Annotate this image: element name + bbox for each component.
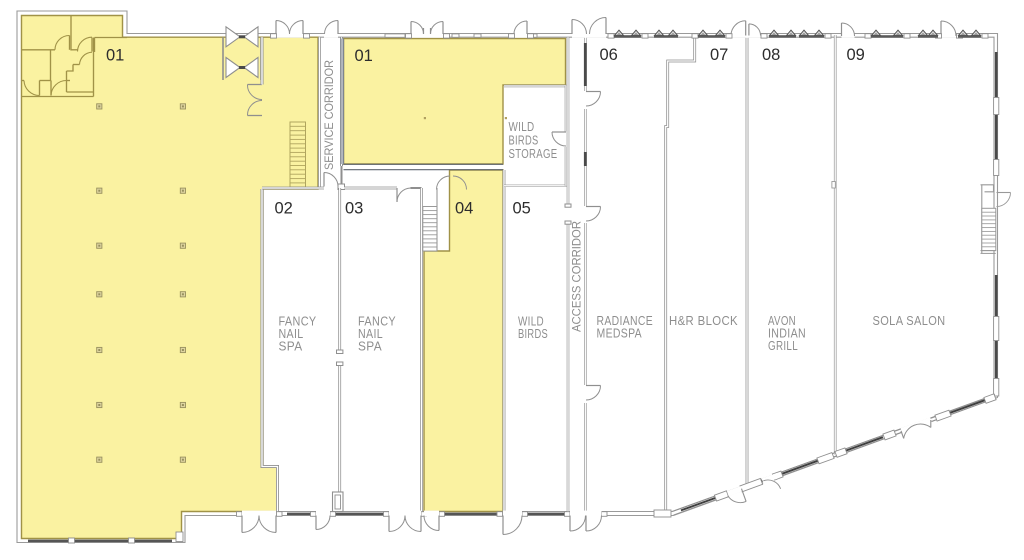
svg-text:04: 04 (455, 200, 473, 218)
svg-text:WILD: WILD (509, 120, 535, 134)
svg-text:SOLA SALON: SOLA SALON (873, 314, 946, 328)
svg-text:07: 07 (710, 46, 728, 64)
svg-text:08: 08 (762, 46, 780, 64)
svg-text:01: 01 (106, 47, 124, 65)
svg-text:09: 09 (847, 46, 865, 64)
svg-text:STORAGE: STORAGE (509, 147, 558, 161)
svg-text:H&R BLOCK: H&R BLOCK (669, 314, 738, 328)
svg-text:06: 06 (600, 46, 618, 64)
svg-text:ACCESS CORRIDOR: ACCESS CORRIDOR (572, 221, 584, 332)
svg-text:SERVICE CORRIDOR: SERVICE CORRIDOR (324, 60, 336, 170)
svg-text:MEDSPA: MEDSPA (597, 327, 643, 341)
svg-text:BIRDS: BIRDS (518, 327, 548, 341)
svg-text:GRILL: GRILL (768, 339, 798, 353)
svg-text:SPA: SPA (358, 340, 382, 354)
svg-text:01: 01 (355, 47, 373, 65)
svg-text:SPA: SPA (279, 340, 303, 354)
svg-text:BIRDS: BIRDS (509, 134, 539, 148)
svg-text:05: 05 (513, 200, 531, 218)
svg-text:03: 03 (345, 200, 363, 218)
svg-text:02: 02 (275, 200, 293, 218)
